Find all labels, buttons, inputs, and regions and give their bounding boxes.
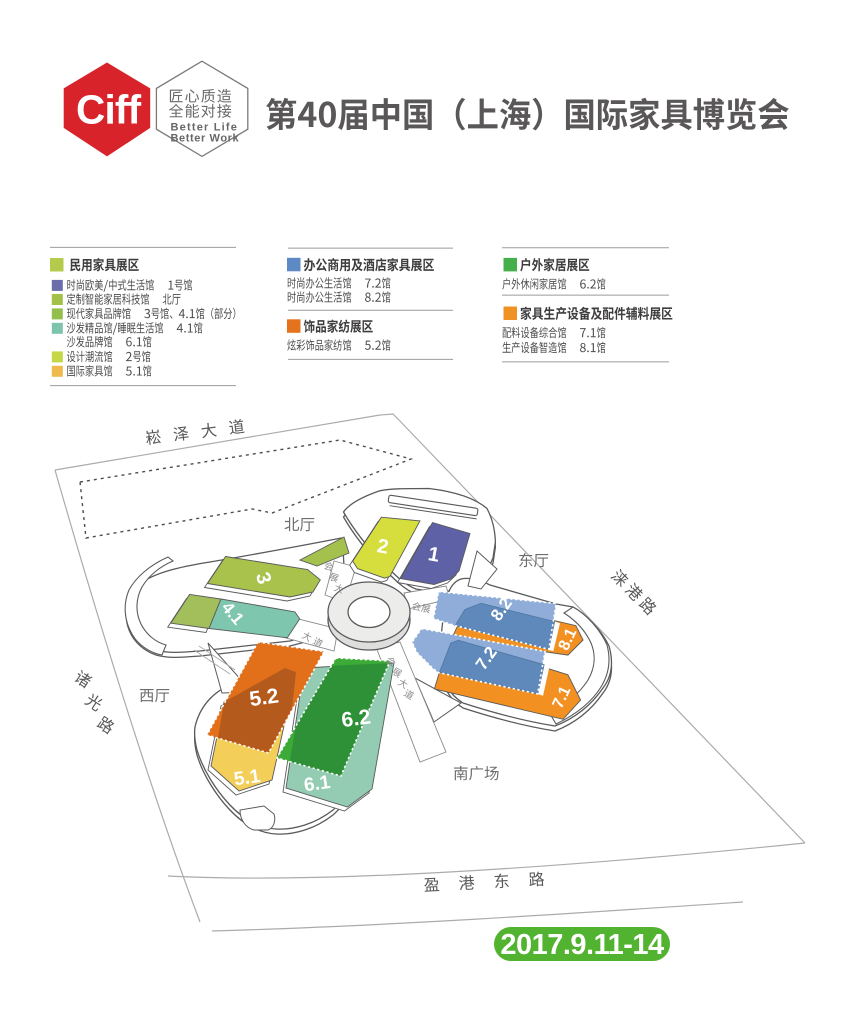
svg-text:2017.9.11-14: 2017.9.11-14 (500, 929, 664, 961)
svg-text:6.2: 6.2 (340, 705, 372, 732)
svg-text:5.1: 5.1 (233, 766, 263, 791)
svg-text:Better Work: Better Work (171, 133, 240, 145)
svg-text:5.2: 5.2 (248, 684, 280, 711)
svg-text:6.1: 6.1 (303, 772, 333, 797)
svg-text:Ciff: Ciff (76, 87, 142, 133)
